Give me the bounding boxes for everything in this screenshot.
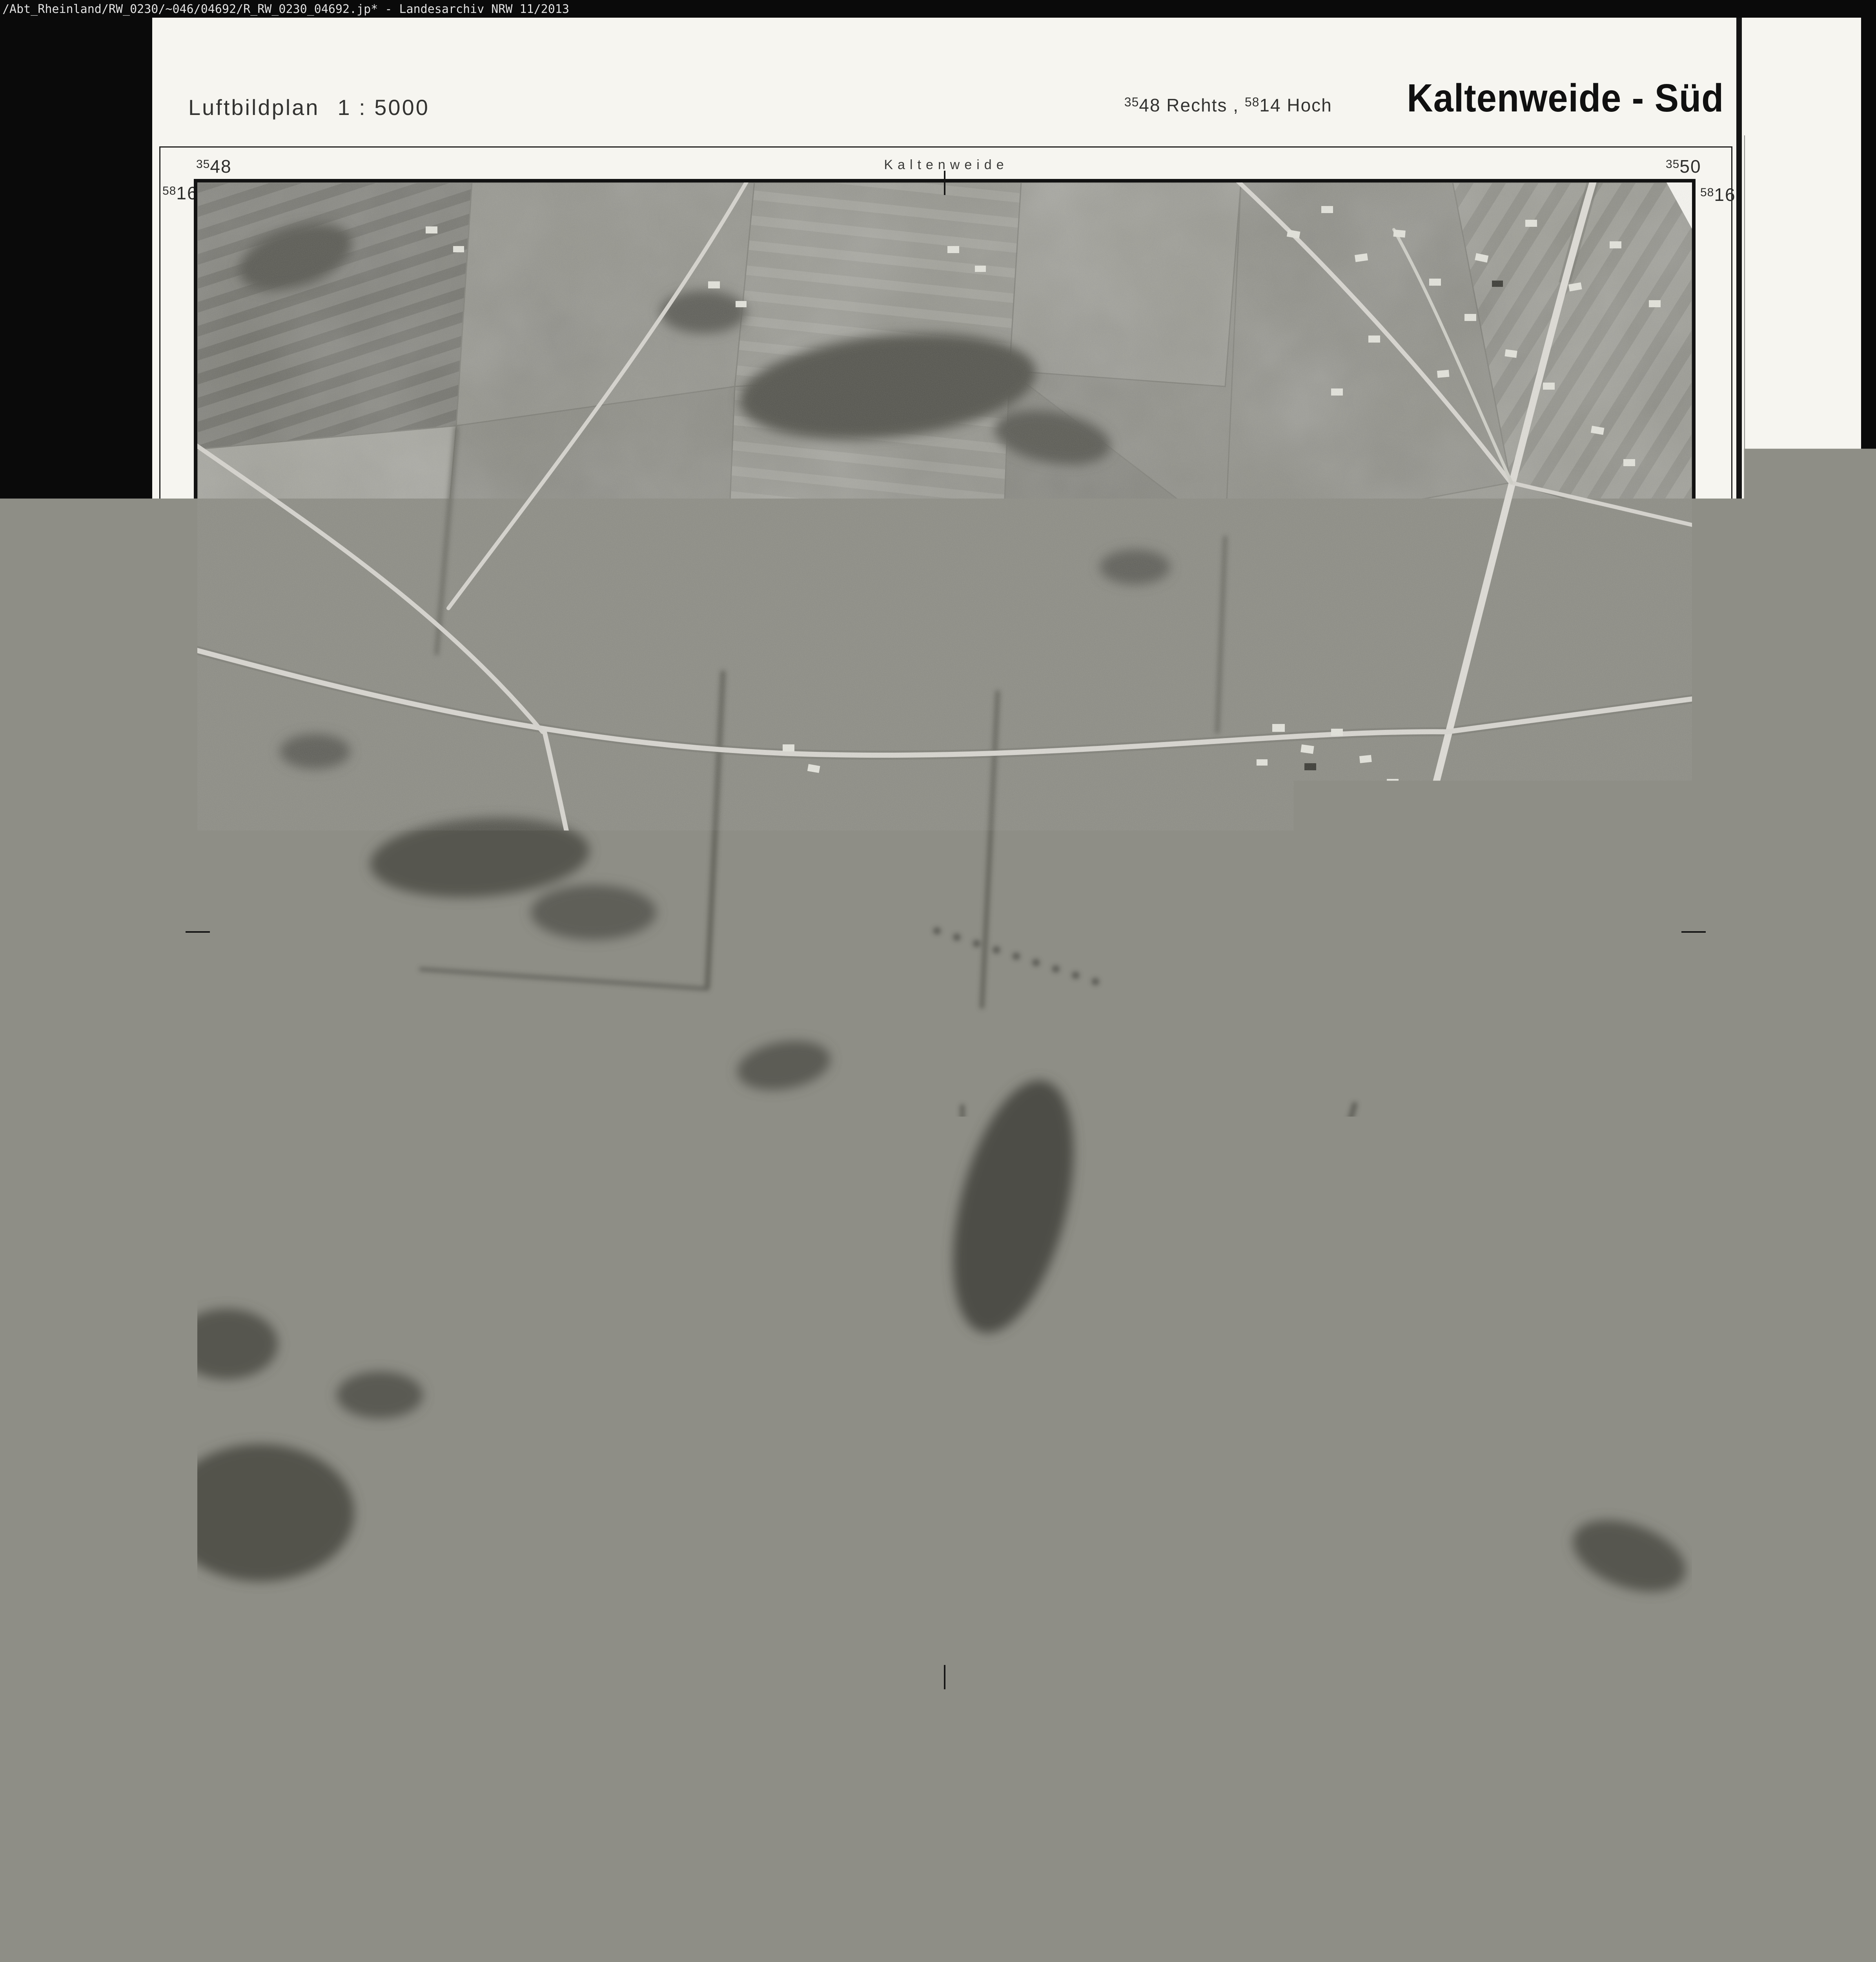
grid-high-word: Hoch	[1281, 95, 1332, 115]
scale-tick-label: 200	[945, 1803, 972, 1820]
aerial-photo-graphic: Evershorst	[197, 182, 1692, 1681]
series-scale: 1 : 5000	[337, 95, 429, 120]
grid-high-sup: 58	[1245, 95, 1260, 109]
aerial-photo: Evershorst	[194, 179, 1696, 1685]
scale-labels: 100 0 100 200 300 400 500 m	[694, 1803, 1224, 1822]
edge-label-top: Kaltenweide	[829, 157, 1064, 173]
scale-tick-label: 100	[856, 1803, 883, 1820]
copyright-line1: Nachdruck und Vervielfältigung (auch ein…	[763, 1878, 1208, 1896]
publisher-line: Plan und Karte G.m.b.H. Münster (Westf.)	[719, 1826, 1189, 1853]
tick-left-center	[186, 931, 210, 933]
scale-tick-label: 100	[680, 1803, 707, 1820]
scale-tick-label: 0	[777, 1803, 786, 1820]
tick-top-center	[944, 171, 945, 195]
corner-coordinate-top-left-northing: 5816	[162, 182, 198, 204]
corner-coordinate-bottom-left-northing: 5814	[161, 1667, 197, 1688]
series-label: Luftbildplan	[188, 95, 319, 120]
rectification-line1: Entzerrungsgrundlage :	[1466, 1775, 1710, 1798]
scan-fold-line	[1736, 18, 1742, 1962]
grid-high-main: 14	[1259, 95, 1281, 115]
archive-watermark: /Abt_Rheinland/RW_0230/~046/04692/R_RW_0…	[2, 2, 569, 16]
grid-reference: 3548 Rechts , 5814 Hoch	[1124, 95, 1332, 116]
copyright-note: Nachdruck und Vervielfältigung (auch ein…	[763, 1878, 1208, 1915]
series-heading: Luftbildplan1 : 5000	[188, 95, 430, 120]
rectification-line2: Katasterplankarte	[1466, 1798, 1710, 1822]
copyright-line2: Anfertigung von Vergrößerungen oder Verk…	[763, 1896, 1208, 1915]
corner-coordinate-top-right-northing: 5816	[1700, 184, 1736, 205]
map-sheet-page: Luftbildplan1 : 5000 3548 Rechts , 5814 …	[152, 18, 1861, 1962]
scale-minor-ticks	[695, 1794, 783, 1799]
corner-coordinate-top-right-easting: 3550	[1666, 156, 1701, 177]
rectification-note: Entzerrungsgrundlage : Katasterplankarte	[1466, 1775, 1710, 1822]
scale-tick-label: 500	[1210, 1803, 1237, 1820]
scale-bar	[694, 1788, 1226, 1800]
grid-right-main: 48	[1139, 95, 1160, 115]
edge-label-right: Krähenwinkel	[1705, 886, 1718, 985]
corner-coordinate-bottom-right-northing: 5814	[1699, 1670, 1735, 1691]
sheet-heading: 3548 Rechts , 5814 Hoch Kaltenweide - Sü…	[1124, 76, 1724, 121]
scanned-sheet: /Abt_Rheinland/RW_0230/~046/04692/R_RW_0…	[0, 0, 1876, 1962]
scan-fold-shadow	[1744, 135, 1745, 1823]
scale-block: 1 : 5000 100 0 100 200 300 400	[694, 1760, 1266, 1822]
edge-label-left: Schulenburg - Nord	[162, 883, 176, 1027]
scale-unit-label: m	[1248, 1803, 1261, 1820]
grid-right-word: Rechts ,	[1161, 95, 1245, 115]
tick-bottom-center	[944, 1665, 945, 1689]
date-note: Aufgen. 8. November 1956	[188, 1776, 451, 1797]
scale-title: 1 : 5000	[694, 1760, 1224, 1781]
scale-tick-label: 300	[1033, 1803, 1060, 1820]
corner-coordinate-bottom-left-easting: 3548	[190, 1692, 226, 1713]
base-map-note: Top. Karte 1 : 25 000 Nr. 3524	[417, 1894, 674, 1912]
corner-coordinate-bottom-right-easting: 3550	[1668, 1693, 1704, 1714]
corner-coordinate-top-left-easting: 3548	[196, 156, 232, 177]
page-title: Kaltenweide - Süd	[1407, 76, 1724, 121]
tick-right-center	[1681, 931, 1706, 933]
grid-right-sup: 35	[1124, 95, 1139, 109]
edge-label-bottom: Langenh. - West	[819, 1696, 1055, 1712]
scale-tick-label: 400	[1122, 1803, 1149, 1820]
